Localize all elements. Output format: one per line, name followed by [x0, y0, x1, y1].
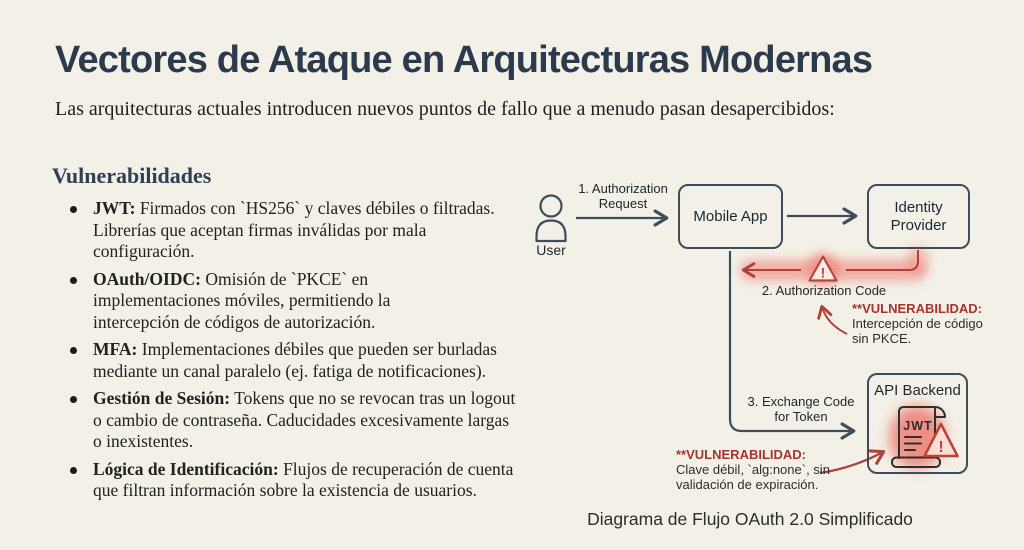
mobile-app-label: Mobile App [693, 208, 767, 226]
vulnerabilities-heading: Vulnerabilidades [52, 163, 211, 189]
api-backend-node: API Backend [867, 373, 968, 474]
api-backend-label: API Backend [874, 382, 961, 400]
user-icon [537, 196, 566, 242]
svg-text:!: ! [821, 265, 826, 281]
annotation-pkce-arrow [822, 307, 847, 334]
vulnerability-term: Lógica de Identificación: [93, 459, 279, 479]
oauth-flow-diagram: ! JWT ! Mobile App Identity Provider API… [520, 160, 1024, 550]
annotation-line: Intercepción de código [852, 316, 983, 331]
vulnerability-item-idlogic: Lógica de Identificación: Flujos de recu… [62, 459, 521, 502]
vulnerability-annotation-jwt: **VULNERABILIDAD: Clave débil, `alg:none… [676, 447, 830, 492]
annotation-title: **VULNERABILIDAD: [852, 301, 983, 316]
vulnerability-annotation-pkce: **VULNERABILIDAD: Intercepción de código… [852, 301, 983, 346]
vulnerability-item-oauth: OAuth/OIDC: Omisión de `PKCE` en impleme… [62, 269, 479, 334]
mobile-app-node: Mobile App [678, 184, 783, 249]
flow-step3-label: 3. Exchange Code for Token [742, 395, 860, 424]
identity-provider-label: Identity Provider [879, 199, 959, 235]
vulnerability-term: MFA: [93, 339, 137, 359]
vulnerability-term: JWT: [93, 198, 135, 218]
vulnerability-item-mfa: MFA: Implementaciones débiles que pueden… [62, 339, 505, 382]
annotation-line: Clave débil, `alg:none`, sin [676, 462, 830, 477]
user-label: User [521, 243, 581, 258]
identity-provider-node: Identity Provider [867, 184, 970, 249]
vulnerability-text: Firmados con `HS256` y claves débiles o … [93, 198, 495, 261]
page-subtitle: Las arquitecturas actuales introducen nu… [55, 96, 985, 122]
vulnerabilities-list: JWT: Firmados con `HS256` y claves débil… [62, 198, 502, 508]
flow-step1-label: 1. Authorization Request [564, 182, 682, 211]
vulnerability-term: Gestión de Sesión: [93, 388, 230, 408]
vulnerability-item-jwt: JWT: Firmados con `HS256` y claves débil… [62, 198, 525, 263]
diagram-caption: Diagrama de Flujo OAuth 2.0 Simplificado [570, 509, 930, 530]
vulnerability-term: OAuth/OIDC: [93, 269, 201, 289]
annotation-line: sin PKCE. [852, 331, 983, 346]
vulnerability-text: Implementaciones débiles que pueden ser … [93, 339, 497, 381]
page-title: Vectores de Ataque en Arquitecturas Mode… [55, 38, 975, 82]
flow-step2-label: 2. Authorization Code [749, 284, 899, 299]
annotation-title: **VULNERABILIDAD: [676, 447, 830, 462]
vulnerability-item-session: Gestión de Sesión: Tokens que no se revo… [62, 388, 521, 453]
annotation-line: validación de expiración. [676, 477, 830, 492]
